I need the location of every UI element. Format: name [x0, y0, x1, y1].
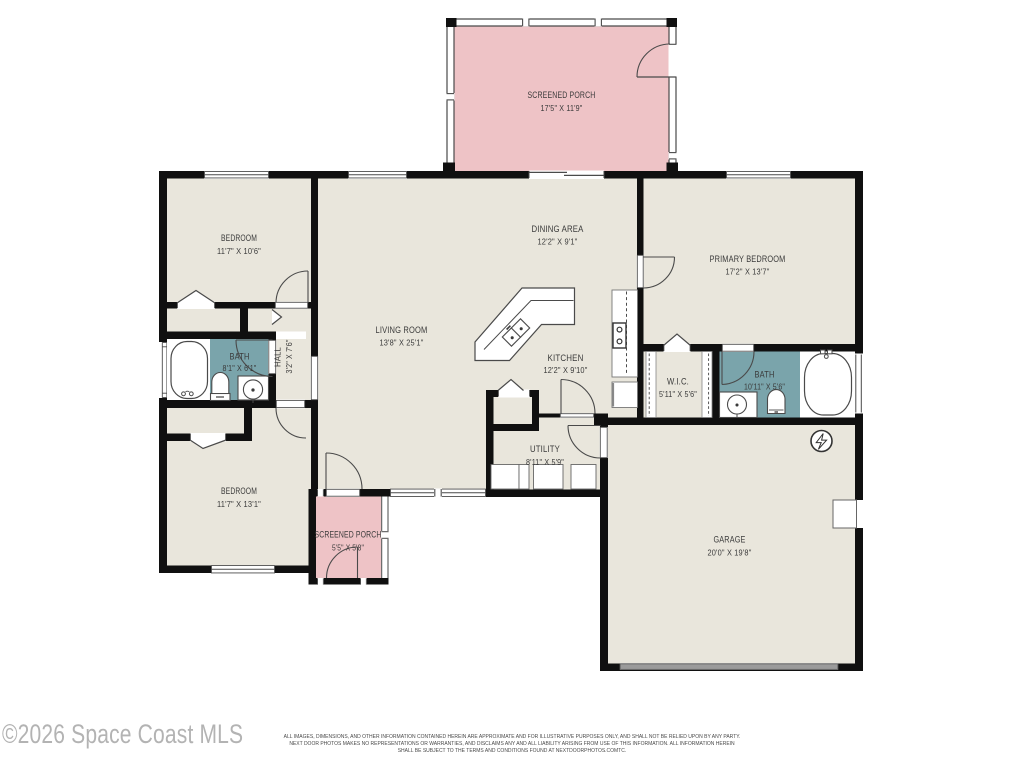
svg-text:11'7" X 10'6": 11'7" X 10'6" — [217, 247, 261, 256]
svg-text:3'2" X 7'6": 3'2" X 7'6" — [285, 339, 294, 373]
svg-text:12'2" X 9'10": 12'2" X 9'10" — [544, 366, 588, 375]
svg-text:17'5" X 11'9": 17'5" X 11'9" — [541, 104, 583, 113]
svg-text:17'2" X 13'7": 17'2" X 13'7" — [726, 268, 770, 277]
svg-text:13'8" X 25'1": 13'8" X 25'1" — [380, 339, 424, 348]
svg-text:5'11" X 5'6": 5'11" X 5'6" — [659, 390, 697, 399]
svg-text:10'11" X 5'6": 10'11" X 5'6" — [744, 383, 785, 392]
svg-text:11'7" X 13'1": 11'7" X 13'1" — [217, 500, 261, 509]
svg-text:BATH: BATH — [230, 352, 250, 362]
svg-text:SCREENED PORCH: SCREENED PORCH — [528, 90, 596, 100]
svg-text:W.I.C.: W.I.C. — [667, 377, 689, 387]
svg-text:HALL: HALL — [274, 347, 283, 367]
svg-text:8'11" X 5'9": 8'11" X 5'9" — [526, 458, 564, 467]
svg-text:BEDROOM: BEDROOM — [221, 233, 257, 243]
svg-text:BEDROOM: BEDROOM — [221, 486, 257, 496]
svg-text:BATH: BATH — [755, 370, 775, 380]
svg-text:PRIMARY BEDROOM: PRIMARY BEDROOM — [710, 254, 786, 264]
svg-text:5'5" X 5'8": 5'5" X 5'8" — [332, 544, 364, 553]
svg-text:DINING AREA: DINING AREA — [532, 224, 585, 234]
svg-text:UTILITY: UTILITY — [530, 444, 560, 454]
svg-text:12'2" X 9'1": 12'2" X 9'1" — [538, 238, 578, 247]
svg-text:8'1" X 6'1": 8'1" X 6'1" — [223, 364, 257, 373]
svg-text:GARAGE: GARAGE — [714, 535, 746, 545]
svg-text:20'0" X 19'8": 20'0" X 19'8" — [708, 549, 752, 558]
svg-text:SCREENED PORCH: SCREENED PORCH — [315, 530, 382, 540]
svg-text:KITCHEN: KITCHEN — [548, 353, 584, 363]
svg-text:LIVING ROOM: LIVING ROOM — [376, 325, 428, 335]
